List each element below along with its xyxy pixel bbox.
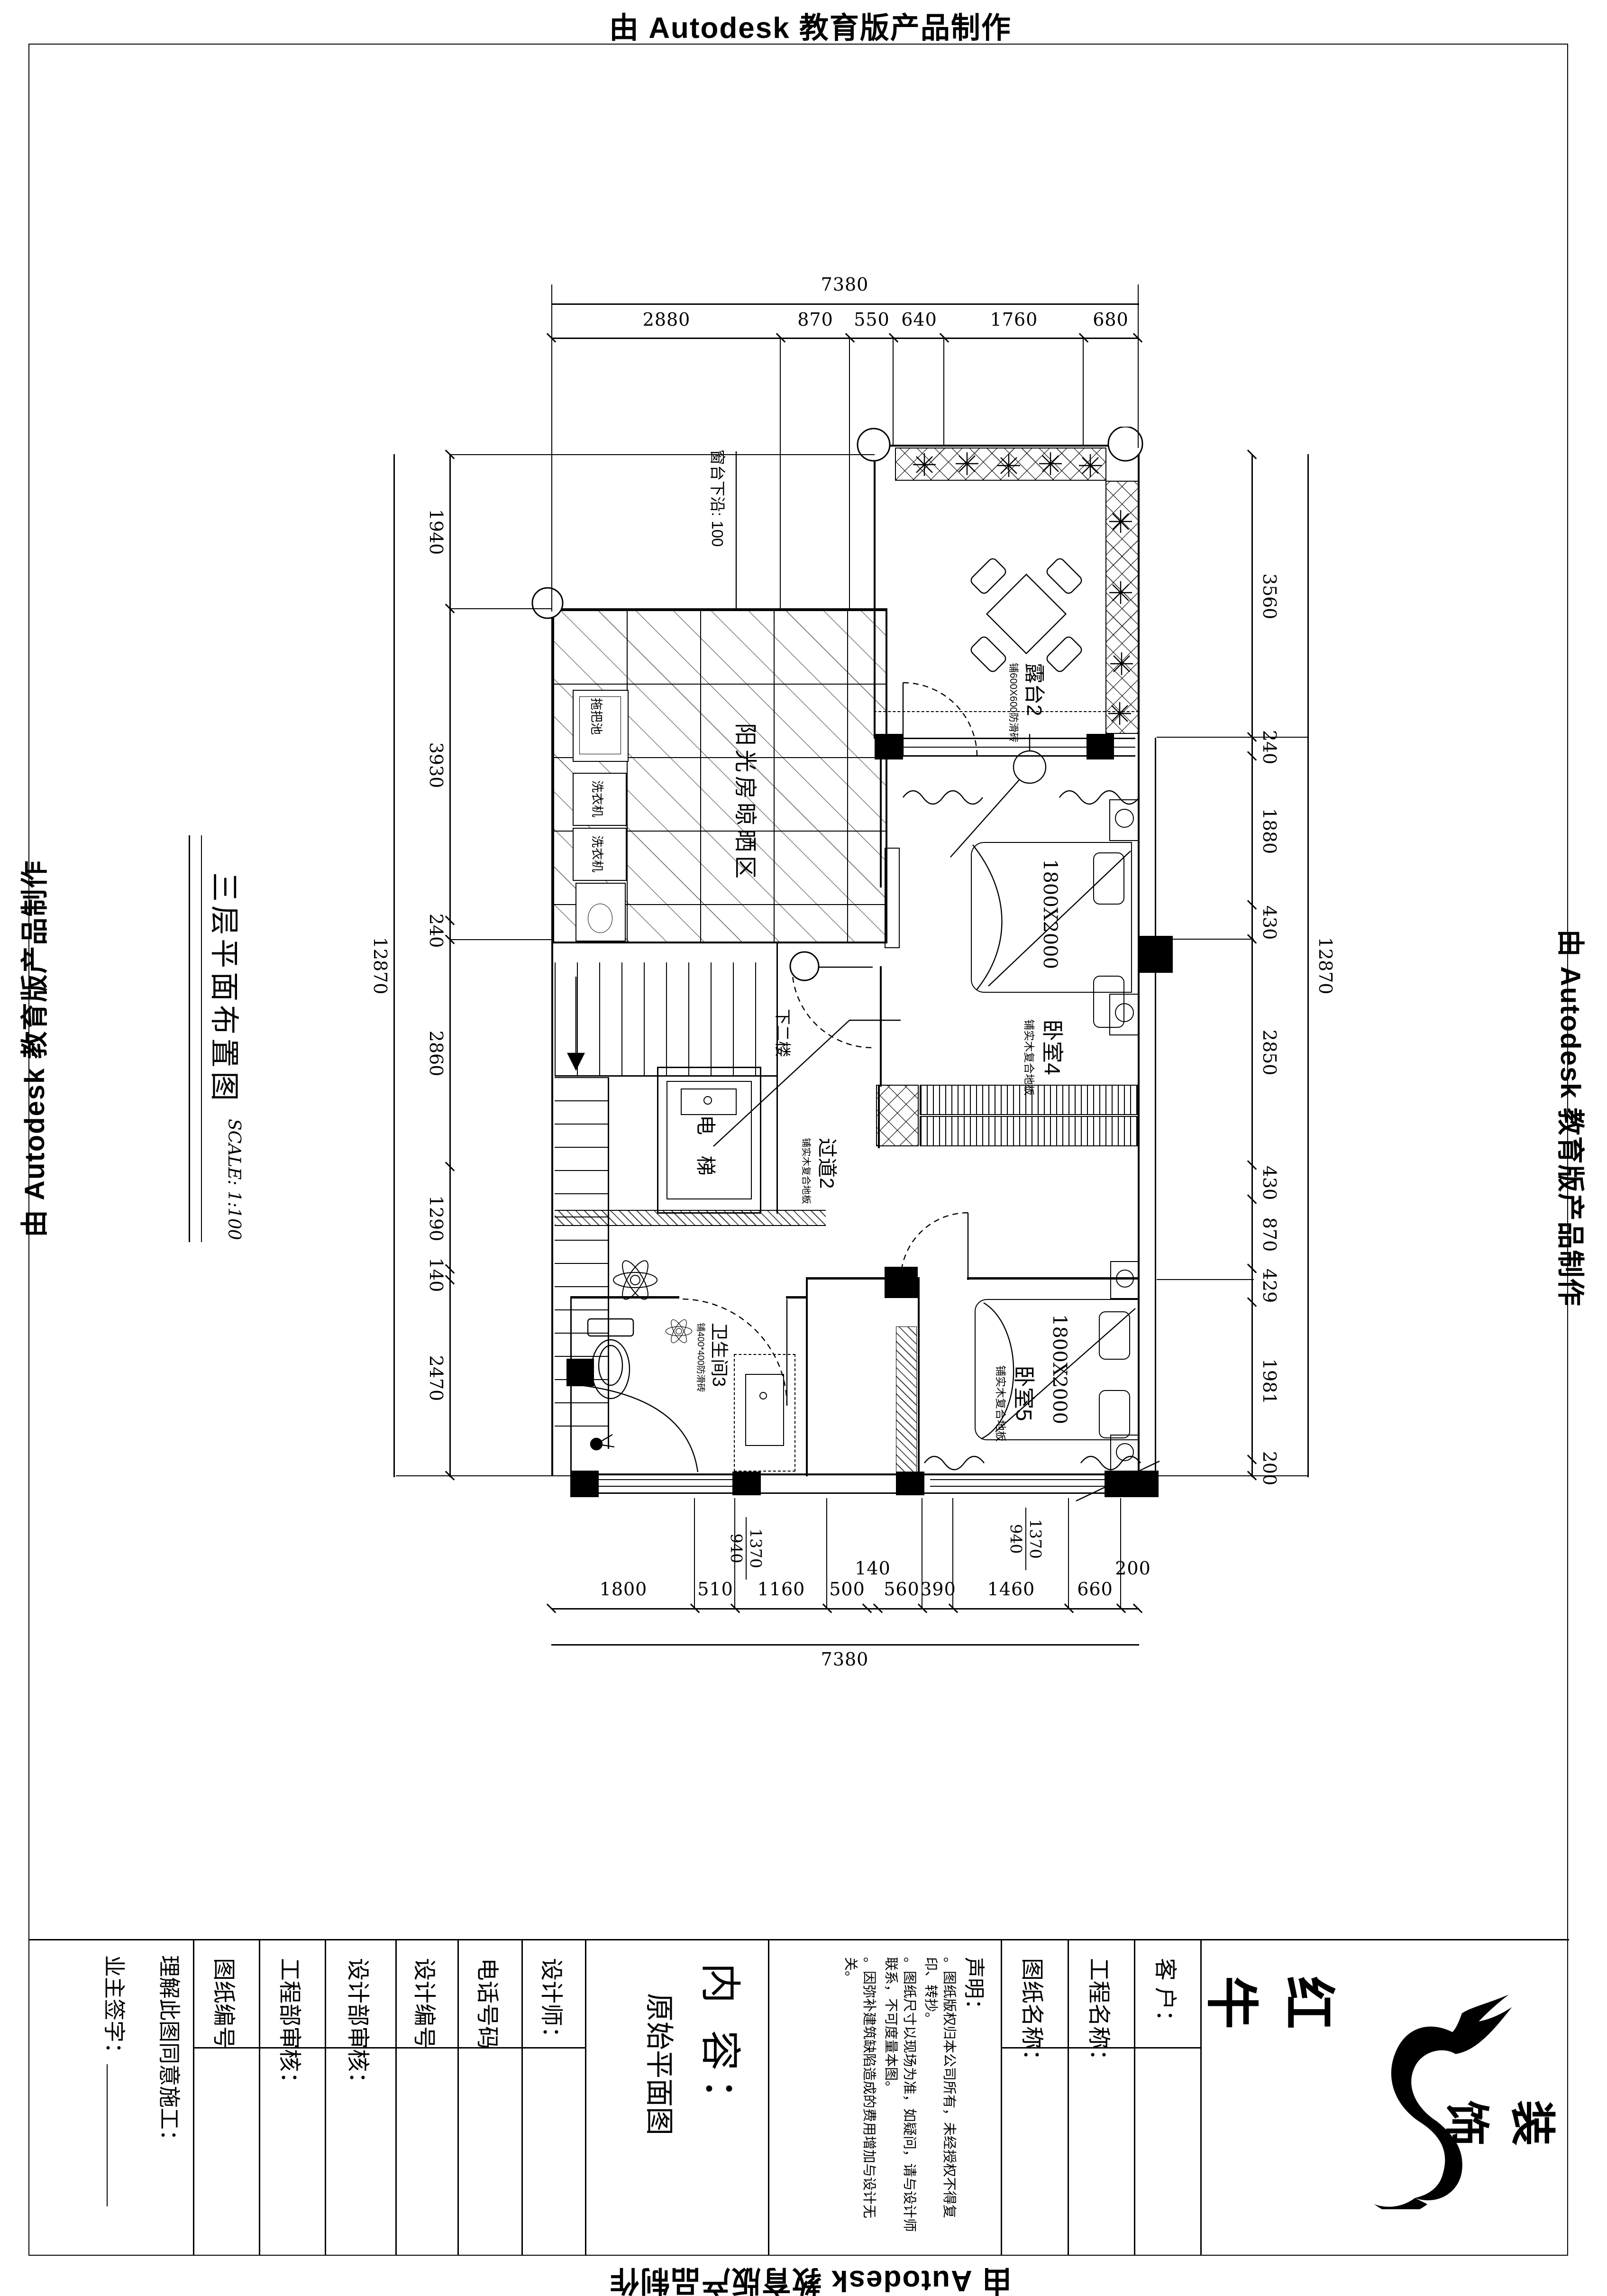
- extension-line: [780, 338, 781, 610]
- window-tag-bottom: 940: [727, 1517, 746, 1580]
- agree-label: 理解此图同意施工：: [155, 1955, 186, 2255]
- dim-label: 680: [1059, 309, 1163, 330]
- cell-eng-audit: 工程部审核：: [260, 1941, 325, 2255]
- room-label-terrace: 露台2 铺600X600防滑砖: [1006, 663, 1051, 781]
- plan-annotations-svg: [521, 427, 1185, 1564]
- room-note: 铺实木复合地板: [994, 1365, 1010, 1508]
- cell-project-name: 工程名称：: [1068, 1941, 1134, 2255]
- dim-line: [551, 303, 1139, 305]
- signature-cell: 理解此图同意施工： 业主签字：: [29, 1941, 193, 2255]
- statement-item: 。因弥补建筑缺陷造成的费用增加与设计无关。: [841, 1957, 878, 2243]
- extension-line: [1157, 1279, 1254, 1280]
- dim-label: 2850: [1259, 981, 1280, 1124]
- sill-note: 窗台下沿: 100: [711, 449, 730, 601]
- toilet: [588, 1319, 633, 1399]
- leader-lines: [576, 451, 1160, 1501]
- window-tag: 1370 940: [1005, 1508, 1045, 1570]
- dim-label: 1940: [426, 461, 447, 603]
- cell-client: 客 户：: [1135, 1941, 1200, 2255]
- fixture-label-washer: 洗衣机: [589, 835, 607, 887]
- title-underline: [189, 835, 190, 1242]
- dim-label: 2880: [614, 309, 719, 330]
- statement-item: 。图纸版权归本公司所有，未经授权不得复印、转抄。: [921, 1957, 958, 2243]
- statement-cell: 声明： 。图纸版权归本公司所有，未经授权不得复印、转抄。 。图纸尺寸以现场为准，…: [769, 1941, 1001, 2255]
- room-label-text: 卧室4: [1038, 1019, 1069, 1162]
- statement-title: 声明：: [961, 1957, 991, 2243]
- page-scale: SCALE: 1:100: [222, 1119, 244, 1252]
- watermark-bottom: 由 Autodesk 教育版产品制作: [609, 2262, 1012, 2296]
- owner-sign-label: 业主签字：: [102, 1955, 127, 2064]
- room-label-corridor: 过道2 铺实木复合地板: [798, 1138, 843, 1247]
- window-tag-bottom: 940: [1007, 1508, 1025, 1570]
- room-note: 铺实木复合地板: [1022, 1019, 1038, 1162]
- dim-line: [551, 1608, 1139, 1610]
- room-label-sunroom: 阳光房晾晒区: [734, 723, 764, 894]
- dim-label: 12870: [1315, 895, 1336, 1037]
- owner-sign-row: 业主签字：: [100, 1955, 131, 2255]
- room-label-bedroom4: 卧室4 铺实木复合地板: [1020, 1019, 1069, 1162]
- extension-line: [450, 939, 552, 940]
- extension-line: [1157, 737, 1308, 738]
- fixture-label-mop: 拖把池: [587, 698, 606, 754]
- extension-line: [1083, 338, 1084, 447]
- extension-line: [551, 284, 552, 612]
- dim-label: 3930: [426, 694, 447, 836]
- content-value: 原始平面图: [641, 1993, 682, 2255]
- dim-label: 12870: [370, 895, 391, 1037]
- dim-label: 200: [1081, 1558, 1185, 1579]
- dim-line: [1251, 454, 1253, 1477]
- dim-label: 240: [426, 860, 447, 1002]
- bed-size-label: 1800X2000: [1048, 1314, 1070, 1433]
- extension-line: [396, 1475, 571, 1476]
- window-tag-top: 1370: [746, 1517, 765, 1580]
- dim-line: [393, 454, 395, 1477]
- dim-line: [551, 1644, 1139, 1646]
- shower-corner: [573, 1384, 698, 1472]
- dim-label: 430: [1259, 851, 1280, 994]
- door-swings: [680, 683, 977, 1406]
- stairs-note: 下二楼: [776, 1009, 795, 1075]
- dim-label: 200: [1259, 1397, 1280, 1539]
- extension-line: [450, 608, 552, 609]
- dim-line: [551, 338, 1139, 339]
- extension-line: [893, 338, 894, 447]
- dim-label: 640: [867, 309, 971, 330]
- flower-decor: [613, 1257, 692, 1345]
- fixture-label-washer: 洗衣机: [589, 780, 607, 832]
- dim-label: 2860: [426, 982, 447, 1125]
- extension-line: [849, 338, 850, 610]
- content-label: 内 容：: [694, 1963, 754, 2255]
- dim-label: 7380: [793, 1649, 897, 1670]
- dim-label: 3560: [1259, 525, 1280, 668]
- room-label-elevator: 电 梯: [695, 1115, 721, 1191]
- extension-line: [450, 454, 875, 455]
- dim-label: 1760: [962, 309, 1066, 330]
- logo-name: 红 牛: [1280, 1976, 1351, 2135]
- room-label-text: 露台2: [1021, 663, 1051, 781]
- dim-label: 140: [821, 1558, 925, 1579]
- room-label-bedroom5: 卧室5 铺实木复合地板: [992, 1365, 1041, 1508]
- statement-item: 。图纸尺寸以现场为准，如疑问，请与设计师联系，不可度量本图。: [881, 1957, 918, 2243]
- logo-suffix: 装 饰: [1507, 2100, 1569, 2247]
- room-label-text: 过道2: [814, 1138, 843, 1247]
- room-note: 铺400*400防滑砖: [695, 1323, 708, 1427]
- dim-label: 1800: [571, 1579, 676, 1600]
- watermark-top: 由 Autodesk 教育版产品制作: [609, 4, 1012, 46]
- dim-label: 660: [1043, 1579, 1147, 1600]
- cell-designer: 设计师：: [522, 1941, 585, 2255]
- dining-set: [969, 557, 1084, 674]
- page-title: 三层平面布置图: [213, 872, 248, 1109]
- content-cell: 内 容： 原始平面图: [586, 1941, 768, 2255]
- dim-label: 7380: [793, 274, 897, 295]
- stair-arrow-head: [568, 1053, 584, 1070]
- extension-line: [943, 338, 944, 447]
- drawing-sheet: 由 Autodesk 教育版产品制作 由 Autodesk 教育版产品制作 由 …: [0, 0, 1607, 2296]
- room-label-text: 卫生间3: [708, 1323, 734, 1427]
- room-label-text: 卧室5: [1010, 1365, 1041, 1508]
- title-underline: [201, 835, 202, 1242]
- extension-line: [1157, 939, 1254, 940]
- window-tag: 1370 940: [725, 1517, 765, 1580]
- dim-line: [1307, 454, 1309, 1477]
- cell-sheet-no: 图纸编号: [194, 1941, 259, 2255]
- room-note: 铺实木复合地板: [800, 1138, 814, 1247]
- cell-sheet-name: 图纸名称：: [1002, 1941, 1068, 2255]
- cell-phone: 电话号码: [458, 1941, 521, 2255]
- signature-line: [107, 2064, 108, 2206]
- dim-label: 2470: [426, 1307, 447, 1449]
- room-label-bathroom: 卫生间3 铺400*400防滑砖: [693, 1323, 734, 1427]
- bed-size-label: 1800X2000: [1038, 859, 1061, 978]
- extension-line: [1157, 1475, 1308, 1476]
- bull-logo: [1359, 1986, 1515, 2209]
- room-note: 铺600X600防滑砖: [1007, 663, 1021, 781]
- window-tag-top: 1370: [1025, 1508, 1045, 1570]
- cell-design-audit: 设计部审核：: [326, 1941, 395, 2255]
- cell-design-no: 设计编号: [396, 1941, 457, 2255]
